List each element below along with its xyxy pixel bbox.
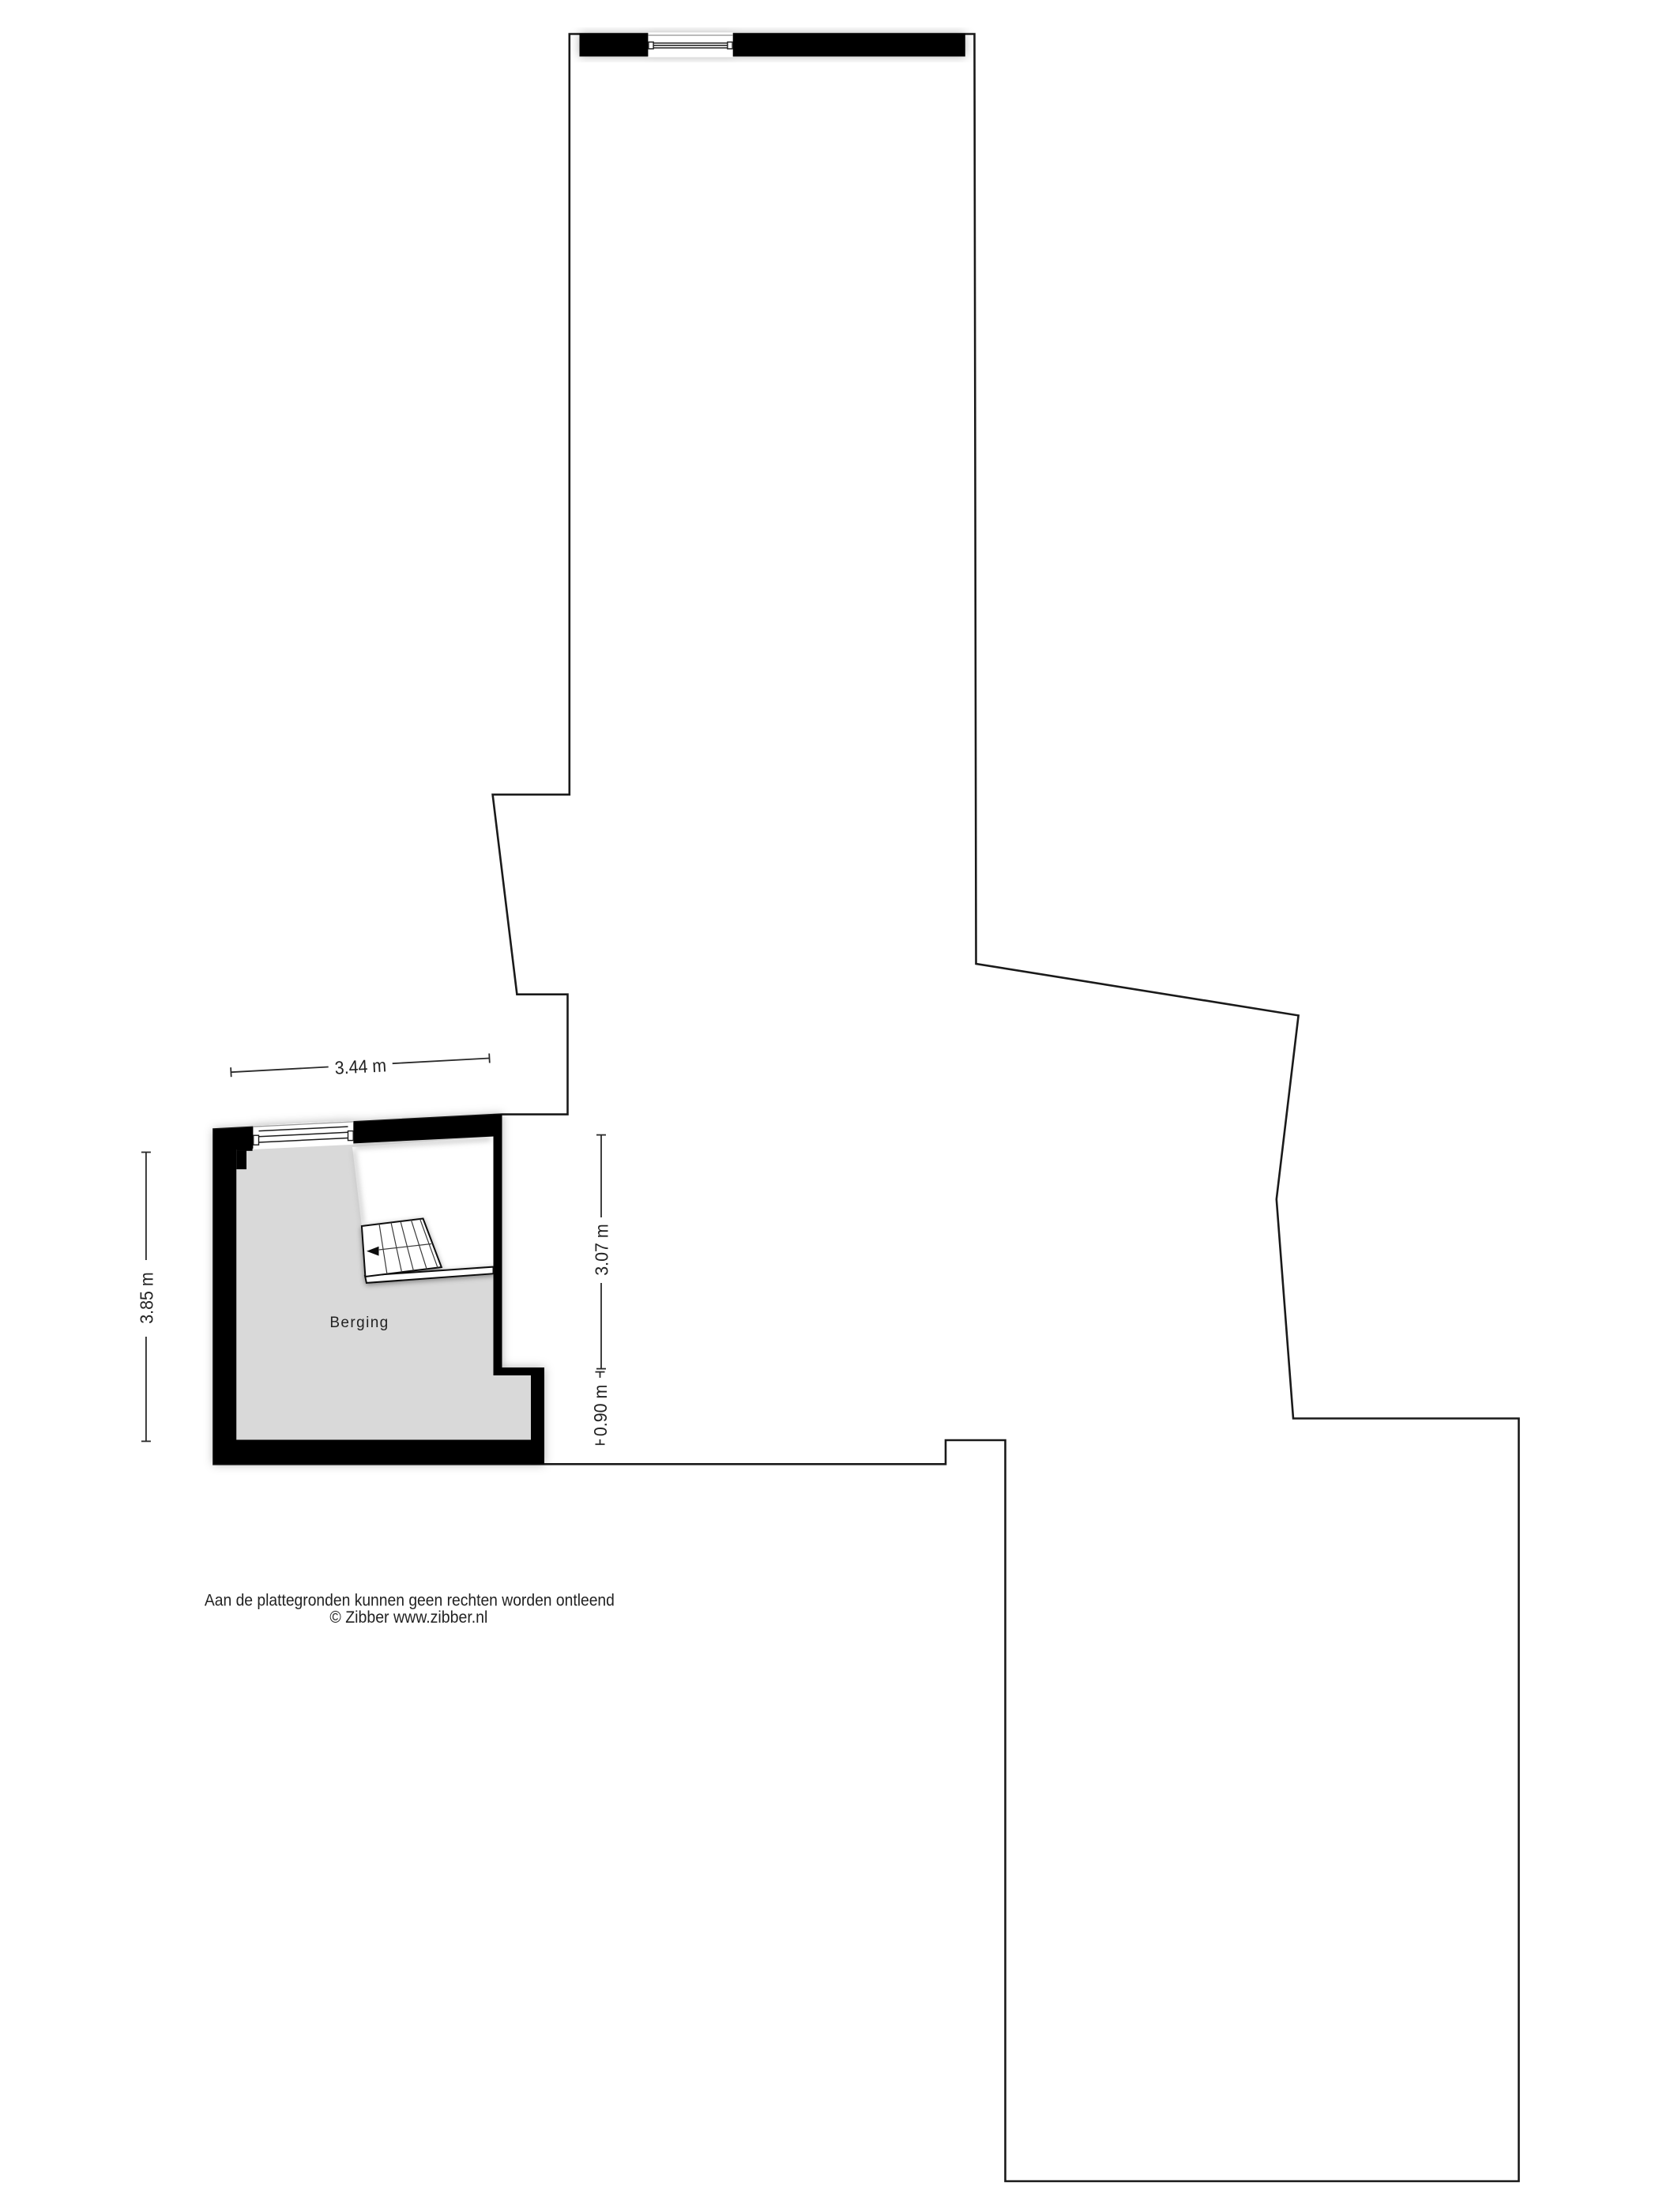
- svg-text:3.85 m: 3.85 m: [136, 1272, 156, 1324]
- svg-text:© Zibber www.zibber.nl: © Zibber www.zibber.nl: [329, 1607, 487, 1627]
- svg-text:3.44 m: 3.44 m: [334, 1055, 387, 1078]
- svg-text:0.90 m: 0.90 m: [590, 1385, 611, 1437]
- svg-text:Berging: Berging: [329, 1315, 389, 1331]
- svg-text:3.07 m: 3.07 m: [591, 1224, 611, 1276]
